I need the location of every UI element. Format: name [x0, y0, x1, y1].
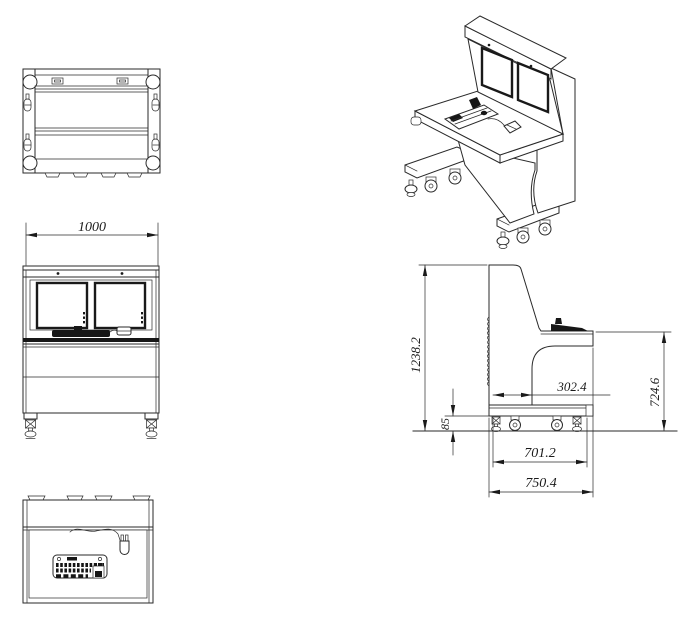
- top-view-outline: [23, 69, 160, 173]
- pad: [95, 496, 112, 500]
- screw-icon: [57, 557, 60, 560]
- dim-overall-height-label: 1238.2: [408, 337, 423, 373]
- desk-wing-cap: [411, 117, 421, 125]
- leveling-foot-left: [24, 413, 37, 439]
- isometric-view: [385, 5, 615, 250]
- caster: [425, 177, 437, 192]
- pad: [127, 173, 142, 177]
- dimension-desk-height: 724.6: [596, 332, 671, 431]
- leveling-foot: [405, 180, 417, 197]
- dim-desk-height-label: 724.6: [647, 377, 662, 407]
- pad: [73, 173, 88, 177]
- keyboard-profile: [551, 324, 588, 331]
- dimension-ground-clearance: 85: [438, 389, 489, 455]
- top-view: [15, 58, 175, 183]
- trackball: [481, 111, 487, 115]
- leveling-foot: [573, 417, 582, 432]
- dim-back-to-footwell-label: 302.4: [556, 379, 587, 394]
- screw-icon: [530, 65, 533, 68]
- caster: [517, 228, 529, 243]
- drawing-sheet: 1000: [0, 0, 689, 617]
- dimension-base-depth: 701.2: [493, 418, 587, 467]
- pad: [28, 496, 45, 500]
- leveling-foot-right: [145, 413, 158, 439]
- leg-front-left: [405, 147, 469, 197]
- caster: [449, 169, 461, 184]
- side-view: 1238.2 85 302.4 724.6: [405, 255, 689, 505]
- base-frame: [489, 405, 593, 416]
- foot-bottom-left: [23, 156, 37, 170]
- foot-bottom-right: [146, 156, 160, 170]
- pad: [101, 173, 116, 177]
- dim-base-depth-label: 701.2: [524, 446, 556, 461]
- dim-ground-clearance-label: 85: [438, 418, 452, 430]
- monitor-right: [95, 283, 145, 328]
- caster: [539, 220, 551, 235]
- pad: [45, 173, 60, 177]
- pad: [133, 496, 150, 500]
- dim-overall-depth-label: 750.4: [525, 476, 557, 491]
- foot-top-left: [23, 75, 37, 89]
- joystick-profile: [555, 318, 562, 324]
- dimension-overall-height: 1238.2: [408, 265, 487, 431]
- screw-icon: [488, 44, 491, 47]
- dim-width-label: 1000: [78, 220, 106, 235]
- foot-top-right: [146, 75, 160, 89]
- connector-panel: [53, 555, 107, 578]
- dimension-width: 1000: [26, 220, 158, 265]
- pad: [67, 496, 83, 500]
- joystick: [74, 326, 82, 330]
- monitor-left: [37, 283, 87, 328]
- bottom-view: [12, 487, 172, 614]
- front-view: 1000: [10, 215, 175, 445]
- keyboard: [52, 330, 110, 337]
- caster: [510, 416, 521, 431]
- desk-surface: [23, 338, 159, 342]
- leveling-foot: [497, 232, 509, 249]
- screw-icon: [98, 557, 101, 560]
- screw-icon: [121, 272, 124, 275]
- caster: [552, 416, 563, 431]
- screw-icon: [57, 272, 60, 275]
